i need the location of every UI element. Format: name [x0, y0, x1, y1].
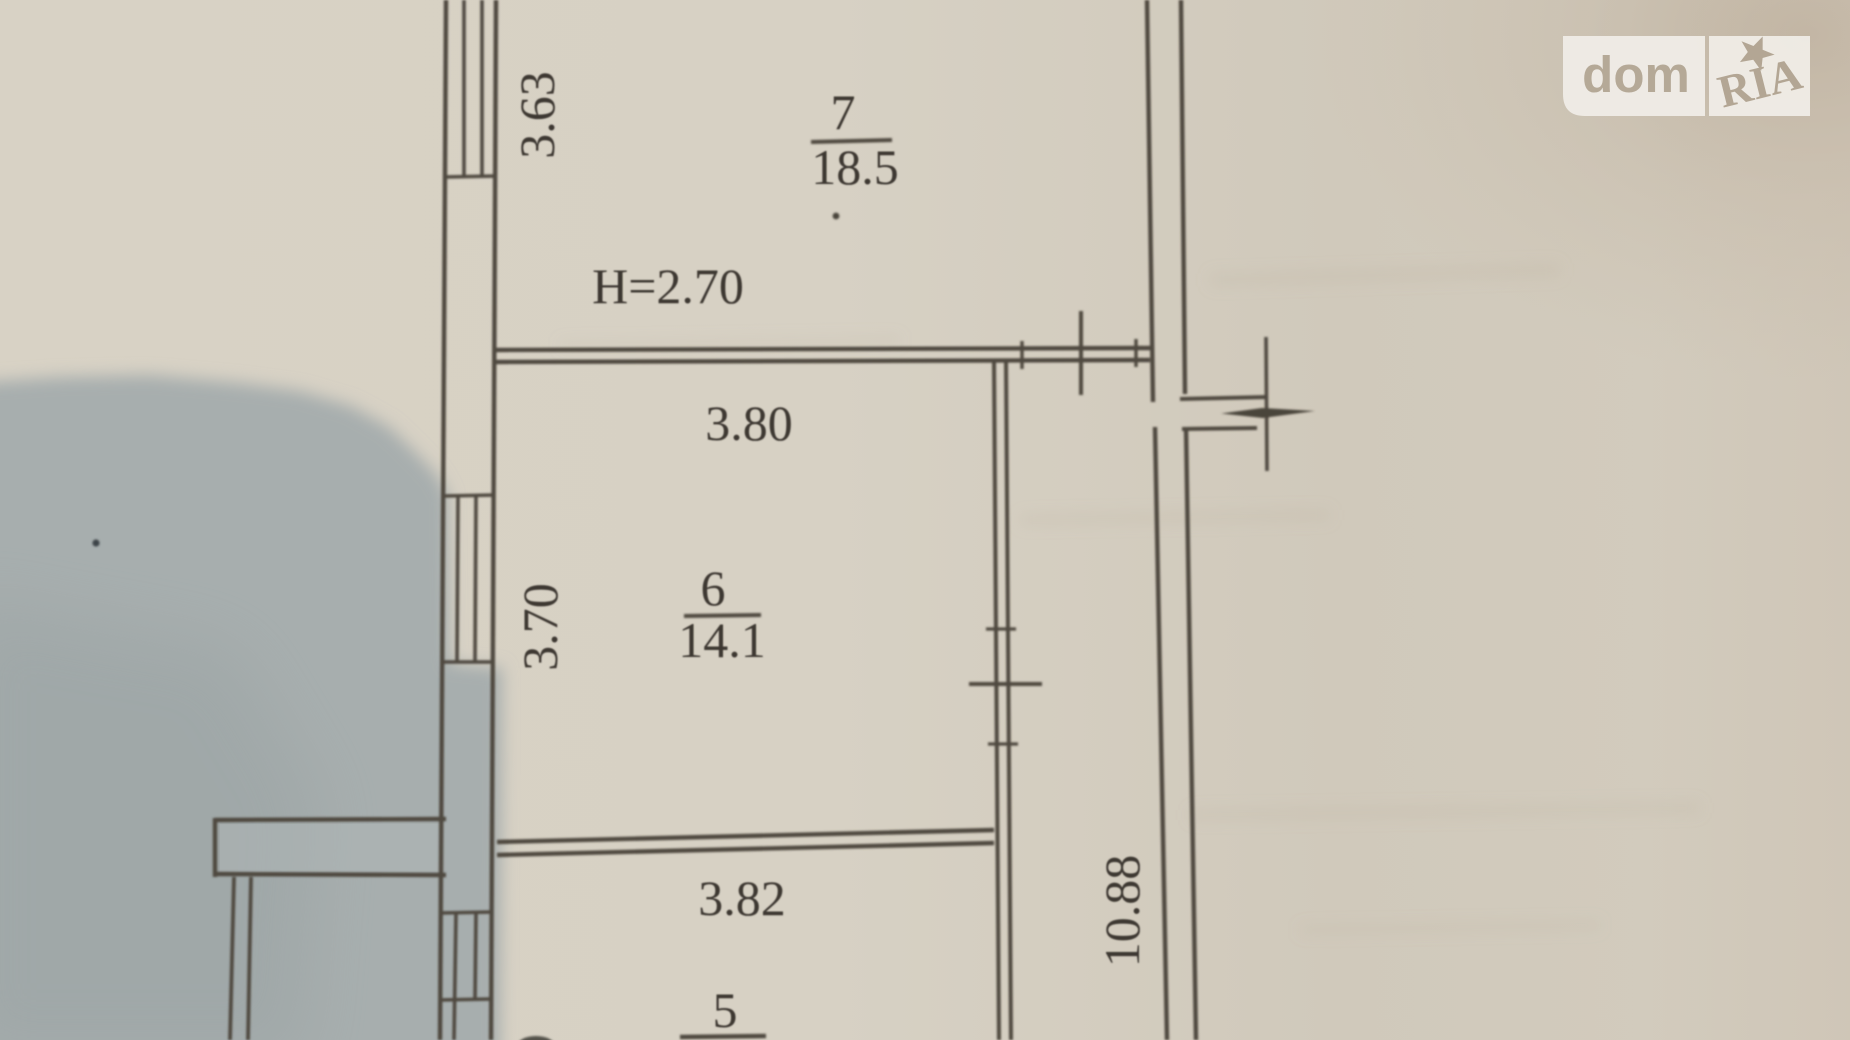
svg-text:3.82: 3.82 [698, 870, 786, 926]
svg-text:3.80: 3.80 [705, 395, 793, 451]
svg-text:18.5: 18.5 [811, 139, 899, 195]
svg-text:14.1: 14.1 [678, 612, 766, 668]
svg-text:7: 7 [831, 84, 856, 140]
svg-text:10.88: 10.88 [1094, 855, 1150, 968]
svg-text:5: 5 [713, 982, 738, 1038]
svg-text:H=2.70: H=2.70 [592, 258, 744, 314]
svg-text:3.63: 3.63 [509, 71, 565, 159]
svg-text:3.70: 3.70 [512, 583, 568, 671]
svg-text:6: 6 [701, 560, 726, 616]
svg-text:dom: dom [1582, 46, 1690, 103]
